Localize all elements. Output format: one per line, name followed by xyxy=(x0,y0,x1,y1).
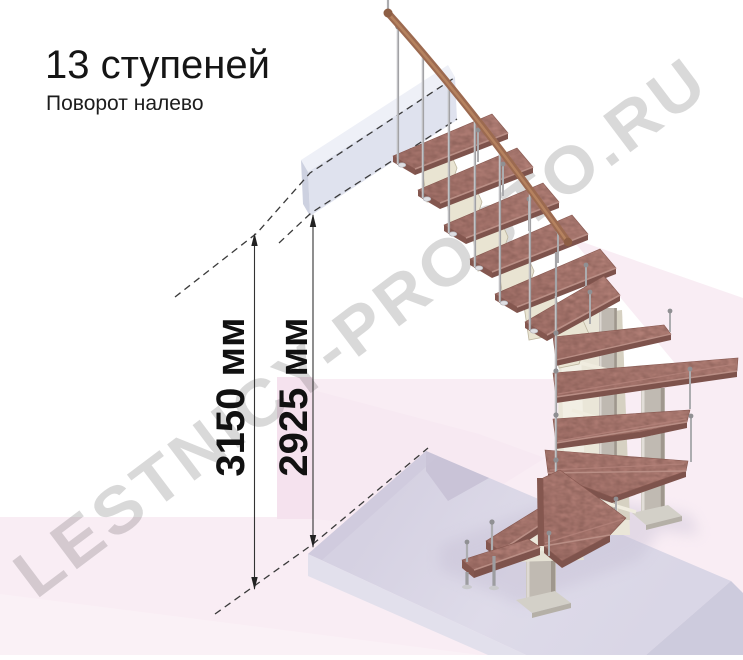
svg-text:Поворот налево: Поворот налево xyxy=(46,92,204,115)
svg-text:13 ступеней: 13 ступеней xyxy=(45,43,270,87)
svg-text:3150 мм: 3150 мм xyxy=(209,317,253,476)
svg-text:2925 мм: 2925 мм xyxy=(272,317,316,476)
